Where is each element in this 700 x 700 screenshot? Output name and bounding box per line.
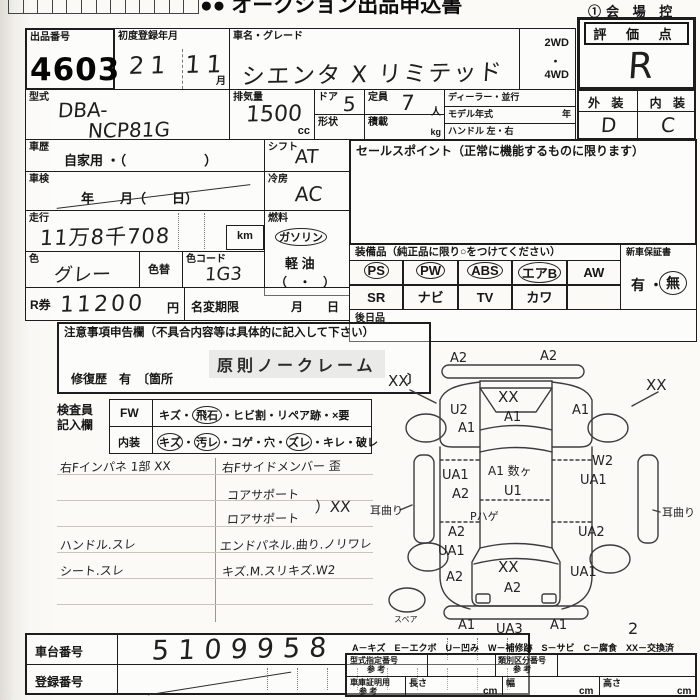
mark-lf-door-2: A2 [452,487,469,502]
type-number-ref: 参 考 [367,666,385,674]
ju-logo: ●● [200,0,225,17]
int-item-kizu-circled: キズ [157,433,183,451]
sales-point-box: セールスポイント（正常に機能するものに限ります） [349,139,697,245]
equip-pw: PW [416,262,445,279]
mark-xx-right: XX [646,376,667,394]
exterior-label: 外 装 [588,94,627,111]
mark-spare: スペア [394,615,417,624]
capacity-cell: 定員 7 人 積載 kg [364,89,445,140]
inspector-label-2: 記入欄 [57,418,109,433]
ear-right-leader [653,510,660,512]
note-right-2: コアサポート [226,485,299,503]
mark-lf-door-1: UA1 [442,468,469,483]
door-value: 5 [342,92,356,116]
spare-circle [389,588,425,612]
capacity-divider [365,114,444,115]
note-left-3: シート.スレ [59,561,124,579]
sep: ・ [321,410,332,422]
mark-roof-3: Pハゲ [470,510,499,523]
int-item-koge: コゲ [231,437,253,449]
interior-row-cell: 内装 [109,426,153,454]
front-bumper-shape [442,365,584,378]
repair-history: 修復歴 有 〔箇所 [71,370,173,387]
front-right-wheel [588,414,628,442]
history-value: 自家用 ・（ ） [64,150,217,169]
ref-v3 [557,655,558,676]
aircon-label: 冷房 [268,175,288,186]
sep: ・ [220,437,231,449]
car-name-value: シエンタ X リミテッド [241,53,505,92]
drive-dot: ・ [550,53,561,69]
width-cm: cm [579,687,593,698]
mark-page-num: 2 [628,619,638,638]
note-left-1: 右Fインパネ 1部 XX [59,457,171,476]
form-title: オークション出品申込書 [231,0,462,17]
mileage-value: 11万8千708 [39,220,171,252]
r-quarter-shape [562,576,592,609]
r-ticket-value: 11200 [59,291,146,317]
grade-header-box: 評 価 点 [584,22,689,45]
equip-kawa: カワ [526,290,552,305]
sep: ・ [253,437,264,449]
note-right-brace: ）XX [314,496,351,518]
grade-label: 評 価 点 [593,27,679,42]
plate-dot [297,668,298,690]
note-left-2: ハンドル.スレ [59,535,136,553]
ref-v1 [427,655,428,676]
displacement-unit: cc [298,125,310,137]
shift-label: シフト [268,143,298,154]
mark-fb-right: A2 [540,349,557,364]
warranty-no-wrap: 無 [659,271,687,295]
car-name-label: 車名・グレード [233,32,303,43]
shaken-cell: 車検 年 月（ 日） [25,171,265,211]
color-cell: 色 グレー [25,251,140,288]
load-label: 積載 [368,118,388,129]
note-right-3: ロアサポート [226,509,299,527]
mark-lr-door-1: A2 [448,525,465,540]
mark-rf-door-2: UA1 [580,473,607,488]
capacity-value: 7 [400,91,415,115]
rename-label: 名変期限 [191,298,239,315]
mark-rf-fender: A1 [572,403,589,418]
car-name-cell: 車名・グレード シエンタ X リミテッド [229,28,520,90]
fw-item-tobiishi-circled: 飛石 [192,406,222,424]
aircon-value: AC [294,182,323,206]
drive-4wd: 4WD [545,69,569,81]
notes-area: 右Fインパネ 1部 XX ハンドル.スレ シート.スレ 右Fサイドメンバー 歪 … [57,458,373,630]
shift-value: AT [294,146,319,168]
ref-hdiv [347,676,695,677]
interior-value: C [660,113,676,137]
model-code-label: 型式 [29,93,49,104]
length-cm: cm [483,687,497,698]
rename-value: 月 日 [291,298,339,315]
fw-label: FW [120,406,139,420]
equip-abs: ABS [467,262,502,279]
warranty-label: 新車保証書 [626,248,671,257]
plate-strike [148,672,291,696]
equip-tv: TV [477,290,494,305]
height-label: 高さ [603,679,621,688]
first-registration-unit: 月 [216,72,226,87]
ei-vdiv [637,91,638,138]
fw-item-hibiwari: ヒビ割 [233,410,266,422]
equipment-row-1: PS PW ABS エアB AW [349,260,621,285]
sep: ・ [222,410,233,422]
handle-label: ハンドル 左・右 [448,127,514,136]
mark-xx-left: XX [388,372,409,390]
top-code-grid [8,0,199,14]
int-item-yogore-circled: 汚レ [194,433,220,451]
mark-r-quarter: UA1 [570,565,597,580]
door-label: ドア [318,93,338,104]
shape-label: 形状 [318,118,338,129]
mark-rf-door-1: W2 [592,454,613,469]
r-ticket-label: R券 [30,299,51,312]
color-code-cell: 色コード 1G3 [182,251,265,288]
length-label: 長さ [409,679,427,688]
mark-rb-right: A1 [550,618,567,633]
interior-label: 内 装 [650,94,689,111]
aircon-cell: 冷房 AC [264,171,350,211]
mileage-unit: km [237,230,253,242]
mileage-dot1 [178,213,179,249]
equipment-header-label: 装備品（純正品に限り○をつけてください） [355,247,561,258]
height-cm: cm [677,687,691,698]
xx-left-strike [410,390,436,403]
mark-rr-door: UA2 [578,525,605,540]
xx-right-strike [632,392,658,406]
note-right-5: キズ.M.スリキズ.W2 [221,561,336,580]
fuel-diesel: 軽 油 [285,253,315,272]
ref-v5 [502,676,503,695]
fw-item-xyou: ×要 [332,410,349,422]
mark-lr-door-2: UA1 [438,544,465,559]
exterior-interior-box: 外 装 内 装 D C [577,89,696,140]
dealer-div1 [445,106,575,107]
mark-ear-left: 耳曲り [370,504,403,517]
capacity-unit: 人 [431,103,441,118]
repaint-label: 色替 [148,265,170,277]
color-code-value: 1G3 [204,264,242,286]
repaint-cell: 色替 [139,251,183,288]
equip-navi: ナビ [418,290,444,305]
lot-number-label: 出品番号 [30,33,70,44]
equip-ps: PS [364,262,389,279]
form-title-clip: ●● オークション出品申込書 [200,0,550,22]
fw-item-repair: リペア跡 [277,410,321,422]
mark-fb-left: A2 [450,351,467,366]
mark-rb-left: A1 [458,618,475,633]
sep: ・ [275,437,286,449]
grade-box: 評 価 点 R [577,17,696,90]
history-cell: 車歴 自家用 ・（ ） [25,139,265,172]
right-sill-flap [638,455,658,543]
no-claim-stamp: 原則ノークレーム [209,350,385,378]
history-label: 車歴 [29,143,49,154]
displacement-value: 1500 [245,102,303,128]
cp-vdiv [117,635,118,693]
mark-gate-2: A2 [504,581,521,596]
equip-aw: AW [583,265,604,280]
note-right-1: 右Fサイドメンバー 歪 [221,457,341,476]
plate-dot [327,668,328,690]
int-item-kire: キレ [323,437,345,449]
mark-hood-1: XX [498,388,519,406]
r-ticket-cell: R券 11200 円 [25,287,185,321]
dealer-div2 [445,123,575,124]
mark-l-quarter: A2 [446,570,463,585]
sep: ・ [181,410,192,422]
equipment-row-2: SR ナビ TV カワ [349,285,621,310]
model-year-unit: 年 [562,110,571,119]
int-item-ana: 穴 [264,437,275,449]
drive-2wd: 2WD [545,37,569,49]
mark-roof-2: U1 [504,484,522,499]
fuel-label: 燃料 [268,214,288,225]
chassis-value: 5109958 [151,632,337,666]
door-divider [315,114,364,115]
mark-roof-1: A1 数ヶ [488,463,532,478]
chassis-label: 車台番号 [35,643,83,660]
mileage-dot2 [204,213,205,249]
int-item-zure-circled: ズレ [286,433,312,451]
fw-item-kizu: キズ [159,410,181,422]
mark-hood-2: A1 [504,410,521,425]
equipment-header-cell: 装備品（純正品に限り○をつけてください） [349,244,621,261]
sep: ・ [345,437,356,449]
plate-label: 登録番号 [35,673,83,690]
mark-rb-center: UA3 [496,622,523,637]
sep: ・ [312,437,323,449]
mark-ear-right: 耳曲り [662,506,695,519]
dealer-label: ディーラー・並行 [448,93,519,102]
garage-ref: 参 考 [359,688,377,696]
ref-v4 [405,676,406,695]
warranty-no-circled: 無 [659,271,687,295]
notes-divider [215,458,216,622]
door-shape-cell: ドア 5 形状 [314,89,365,140]
sep: ・ [266,410,277,422]
interior-items-cell: キズ・汚レ・コゲ・穴・ズレ・キレ・破レ [152,426,372,454]
inspector-label: 検査員 記入欄 [57,403,109,433]
warranty-cell: 新車保証書 有 ・ 無 [620,244,697,310]
shaken-label: 車検 [29,175,49,186]
mark-gate-1: XX [498,558,519,576]
class-number-ref: 参 考 [513,666,531,674]
mark-lf-fender-2: A1 [458,421,475,436]
shift-cell: シフト AT [264,139,350,172]
mark-lf-fender-1: U2 [450,403,468,418]
ref-v6 [599,676,600,695]
lot-number-stamp: 4603 [30,52,120,88]
plate-dot [267,668,268,690]
capacity-label: 定員 [368,93,388,104]
equip-airb: エアB [518,262,561,283]
grade-value: R [627,46,655,87]
caution-label: 注意事項申告欄（不具合内容等は具体的に記入して下さい） [64,327,374,339]
left-sill-flap [414,455,434,543]
sales-point-label: セールスポイント（正常に機能するものに限ります） [356,145,644,158]
rename-deadline-cell: 名変期限 月 日 [184,287,350,321]
inspector-label-1: 検査員 [57,403,109,418]
ei-hdiv [579,111,694,112]
model-code-cell: 型式 DBA- NCP81G [25,89,230,140]
color-value: グレー [53,260,112,288]
fw-items-cell: キズ・飛石・ヒビ割・リペア跡・×要 [152,399,372,427]
dealer-cell: ディーラー・並行 モデル年式 年 ハンドル 左・右 [444,89,576,140]
fuel-gasoline-circled: ガソリン [275,228,327,246]
first-registration-cell: 初度登録年月 21 11 月 [114,28,230,90]
width-label: 幅 [506,679,515,688]
ref-table: 型式指定番号 参 考 類別区分番号 参 考 車庫証明用 参 考 長さ cm 幅 … [345,653,697,697]
rule-line [57,526,373,527]
fuel-cell: 燃料 ガソリン 軽 油 （ ・ ） [264,210,350,296]
color-label: 色 [29,255,39,266]
r-ticket-unit: 円 [167,299,179,316]
drive-type-cell: 2WD ・ 4WD [519,28,576,90]
exterior-value: D [600,113,617,137]
damage-diagram: A2 A2 XX XX U2 A1 XX A1 A1 UA1 A2 A1 数ヶ … [370,348,700,648]
load-unit: kg [430,127,441,137]
model-year-label: モデル年式 [448,110,493,119]
sep: ・ [183,437,194,449]
interior-row-label: 内装 [118,434,140,450]
rule-line [57,604,373,605]
mileage-cell: 走行 11万8千708 km [25,210,265,252]
rear-gate-shape [472,548,560,606]
displacement-cell: 排気量 1500 cc [229,89,315,140]
fw-cell: FW [109,399,153,427]
note-right-4: エンドパネル.曲り.ノリワレ [219,535,372,555]
warranty-yes: 有 [631,275,645,295]
equip-sr: SR [367,290,385,305]
first-registration-label: 初度登録年月 [118,32,178,43]
auction-sheet-scan: ●● オークション出品申込書 ①会 場 控 出品番号 初度登録年月 21 11 … [0,0,700,700]
fuel-gasoline: ガソリン [275,228,327,246]
mileage-unit-box: km [226,225,264,250]
ref-v2 [495,655,496,676]
